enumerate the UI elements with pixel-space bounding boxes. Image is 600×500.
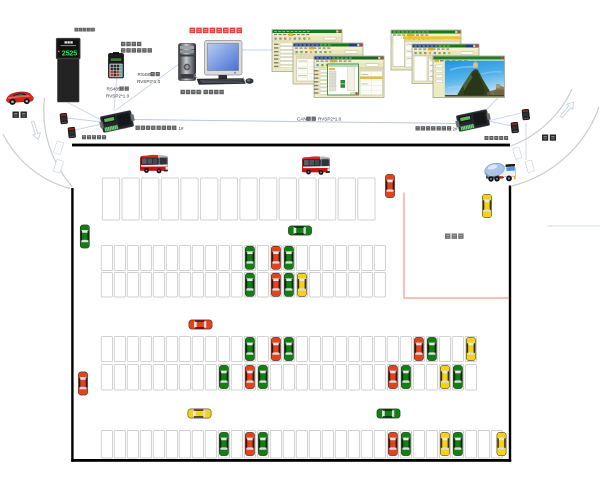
svg-text:RVSP2*1.0: RVSP2*1.0 <box>318 117 342 122</box>
svg-text:RVSP2*1.0: RVSP2*1.0 <box>137 79 161 84</box>
svg-text:2525: 2525 <box>62 48 77 57</box>
svg-text:1#: 1# <box>179 126 184 131</box>
svg-text:CAN: CAN <box>297 117 307 122</box>
svg-text:RVSP2*1.0: RVSP2*1.0 <box>106 94 130 99</box>
svg-text:2#: 2# <box>453 126 458 131</box>
svg-text:RS485: RS485 <box>138 72 152 77</box>
svg-text:RS485: RS485 <box>107 87 121 92</box>
